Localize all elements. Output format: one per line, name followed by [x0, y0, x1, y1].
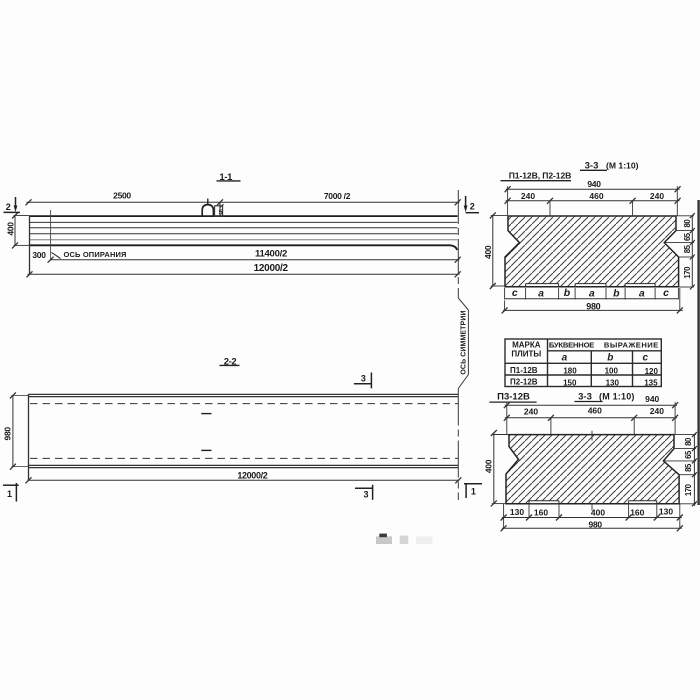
- svg-text:400: 400: [484, 459, 494, 473]
- svg-text:460: 460: [589, 191, 603, 201]
- svg-text:b: b: [613, 288, 620, 300]
- svg-text:400: 400: [483, 245, 493, 259]
- svg-text:240: 240: [521, 191, 535, 201]
- svg-text:а: а: [589, 288, 595, 300]
- svg-text:160: 160: [534, 508, 548, 518]
- svg-text:1: 1: [7, 489, 12, 499]
- svg-text:ПЛИТЫ: ПЛИТЫ: [511, 350, 541, 359]
- svg-text:а: а: [639, 288, 645, 300]
- svg-text:980: 980: [589, 520, 603, 530]
- svg-text:БУКВЕННОЕ: БУКВЕННОЕ: [549, 340, 594, 349]
- svg-text:7000 /2: 7000 /2: [324, 191, 351, 201]
- svg-text:ОСЬ ОПИРАНИЯ: ОСЬ ОПИРАНИЯ: [64, 250, 127, 259]
- svg-text:5: 5: [219, 207, 223, 216]
- svg-text:2: 2: [6, 202, 11, 212]
- svg-text:2-2: 2-2: [224, 356, 237, 367]
- svg-text:130: 130: [510, 507, 524, 517]
- svg-text:11400/2: 11400/2: [255, 248, 287, 259]
- svg-text:80: 80: [683, 219, 692, 228]
- svg-text:П1-12В, П2-12В: П1-12В, П2-12В: [509, 171, 572, 181]
- svg-text:ОСЬ СИММЕТРИИ: ОСЬ СИММЕТРИИ: [460, 310, 467, 374]
- svg-text:130: 130: [606, 378, 620, 387]
- svg-text:85: 85: [684, 463, 693, 472]
- svg-text:300: 300: [32, 250, 46, 260]
- svg-text:80: 80: [684, 437, 693, 446]
- svg-text:3: 3: [361, 373, 366, 383]
- svg-text:65: 65: [683, 232, 692, 241]
- svg-text:с: с: [512, 287, 518, 299]
- svg-text:940: 940: [587, 179, 601, 189]
- svg-text:П1-12В: П1-12В: [510, 366, 538, 375]
- svg-text:с: с: [663, 287, 669, 299]
- svg-text:940: 940: [645, 394, 659, 404]
- svg-text:12000/2: 12000/2: [237, 470, 267, 480]
- svg-text:b: b: [564, 287, 571, 299]
- svg-text:130: 130: [659, 507, 673, 517]
- svg-text:180: 180: [563, 366, 577, 375]
- svg-text:980: 980: [2, 427, 12, 441]
- svg-text:980: 980: [586, 301, 600, 311]
- svg-text:120: 120: [645, 367, 659, 376]
- svg-text:160: 160: [630, 508, 644, 518]
- svg-text:с: с: [643, 352, 649, 363]
- svg-text:3-3: 3-3: [585, 160, 599, 171]
- svg-text:1-1: 1-1: [219, 172, 233, 183]
- svg-text:(М 1:10): (М 1:10): [599, 391, 635, 401]
- svg-text:ВЫРАЖЕНИЕ: ВЫРАЖЕНИЕ: [604, 341, 659, 350]
- svg-text:170: 170: [684, 483, 693, 496]
- svg-text:b: b: [607, 352, 613, 363]
- svg-text:П2-12В: П2-12В: [510, 378, 538, 387]
- svg-text:2500: 2500: [113, 190, 131, 200]
- svg-text:85: 85: [683, 244, 692, 253]
- svg-text:(М 1:10): (М 1:10): [606, 161, 639, 171]
- svg-text:240: 240: [524, 406, 538, 416]
- svg-text:100: 100: [605, 366, 619, 375]
- svg-text:65: 65: [684, 450, 693, 459]
- svg-text:2: 2: [470, 202, 475, 212]
- svg-text:1: 1: [471, 487, 476, 497]
- svg-text:12000/2: 12000/2: [254, 263, 289, 274]
- svg-text:3: 3: [363, 490, 368, 500]
- svg-text:400: 400: [591, 508, 605, 518]
- svg-text:170: 170: [683, 266, 692, 279]
- svg-text:МАРКА: МАРКА: [512, 341, 541, 350]
- svg-text:240: 240: [650, 191, 664, 201]
- svg-text:135: 135: [644, 378, 658, 387]
- svg-text:240: 240: [650, 406, 664, 416]
- svg-text:а: а: [538, 288, 544, 300]
- svg-text:П3-12В: П3-12В: [497, 391, 530, 402]
- svg-text:150: 150: [563, 378, 577, 387]
- svg-text:3-3: 3-3: [578, 391, 592, 402]
- svg-text:а: а: [562, 353, 568, 364]
- svg-text:400: 400: [6, 222, 16, 236]
- svg-text:460: 460: [588, 406, 602, 416]
